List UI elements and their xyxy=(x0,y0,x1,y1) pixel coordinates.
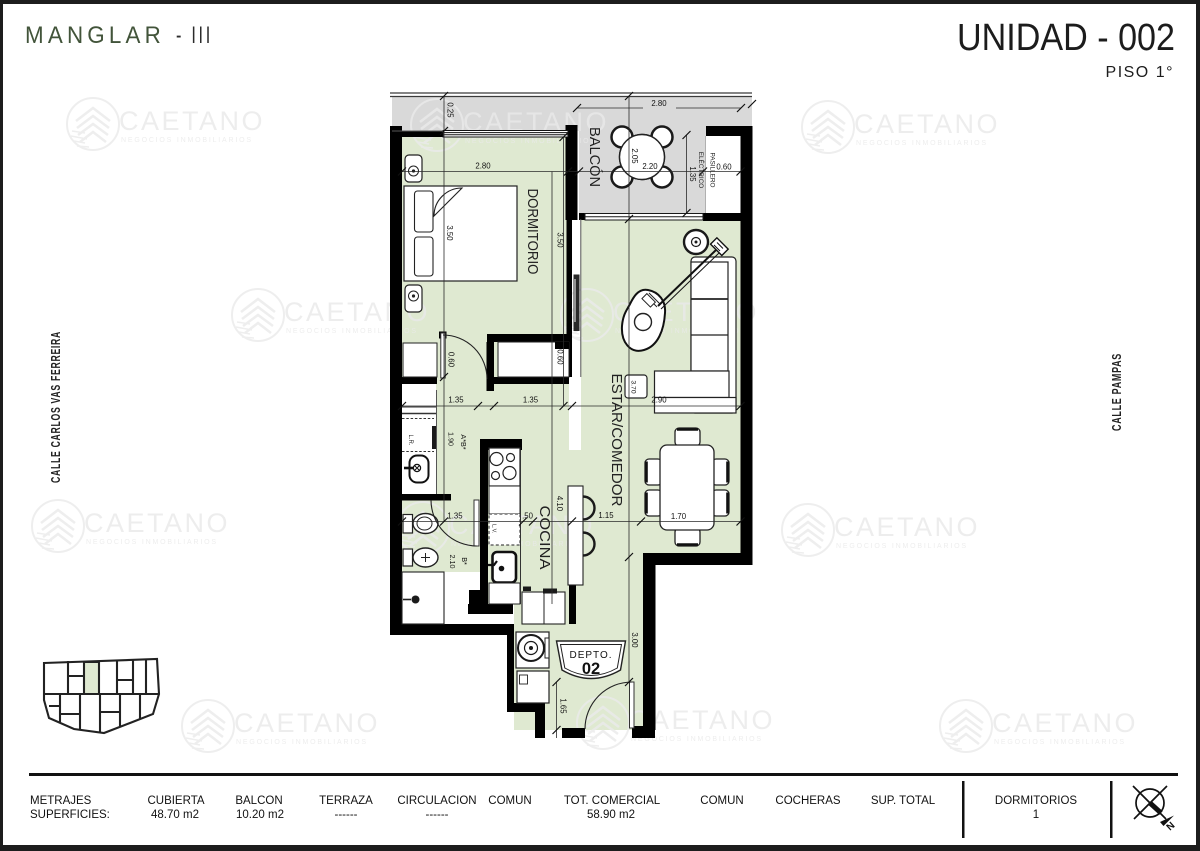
svg-text:10.20 m2: 10.20 m2 xyxy=(236,809,284,821)
svg-text:1.15: 1.15 xyxy=(598,511,614,520)
svg-text:58.90 m2: 58.90 m2 xyxy=(587,809,635,821)
svg-text:CIRCULACION: CIRCULACION xyxy=(397,795,476,807)
svg-text:BALCÓN: BALCÓN xyxy=(586,127,603,187)
svg-text:0.60: 0.60 xyxy=(556,349,565,365)
svg-text:ESTAR/COMEDOR: ESTAR/COMEDOR xyxy=(608,374,624,507)
svg-text:3.00: 3.00 xyxy=(630,632,639,648)
svg-text:1.90: 1.90 xyxy=(447,432,456,446)
svg-text:1.35: 1.35 xyxy=(523,396,539,405)
svg-text:2.05: 2.05 xyxy=(630,148,639,164)
svg-text:B*: B* xyxy=(460,557,469,565)
svg-text:2.20: 2.20 xyxy=(642,162,658,171)
svg-text:SUP. TOTAL: SUP. TOTAL xyxy=(871,795,936,807)
svg-text:METRAJES: METRAJES xyxy=(30,795,92,807)
svg-text:CALLE CARLOS VAS FERREIRA: CALLE CARLOS VAS FERREIRA xyxy=(49,331,63,483)
svg-text:L.V.: L.V. xyxy=(491,524,497,534)
svg-text:UNIDAD - 002: UNIDAD - 002 xyxy=(957,17,1175,59)
svg-text:------: ------ xyxy=(426,809,449,821)
svg-text:48.70 m2: 48.70 m2 xyxy=(151,809,199,821)
svg-text:1.65: 1.65 xyxy=(559,698,568,714)
svg-text:3.50: 3.50 xyxy=(445,225,454,241)
svg-text:PASILLERO: PASILLERO xyxy=(709,152,716,187)
svg-text:DORMITORIOS: DORMITORIOS xyxy=(995,795,1078,807)
svg-text:3.50: 3.50 xyxy=(556,232,565,248)
svg-text:1.35: 1.35 xyxy=(448,396,464,405)
svg-text:2.90: 2.90 xyxy=(651,396,667,405)
svg-text:.50: .50 xyxy=(522,512,534,521)
svg-text:A*B*: A*B* xyxy=(459,434,468,449)
svg-text:COCINA: COCINA xyxy=(536,506,552,570)
svg-text:1.35: 1.35 xyxy=(447,512,463,521)
svg-text:1.35: 1.35 xyxy=(688,166,697,182)
svg-text:MANGLAR: MANGLAR xyxy=(25,22,165,49)
svg-text:BALCON: BALCON xyxy=(235,795,282,807)
svg-text:COMUN: COMUN xyxy=(488,795,531,807)
svg-text:ELÉCTRICO: ELÉCTRICO xyxy=(697,152,706,189)
svg-text:COCHERAS: COCHERAS xyxy=(775,795,841,807)
svg-text:2.10: 2.10 xyxy=(448,555,457,569)
svg-text:CUBIERTA: CUBIERTA xyxy=(147,795,204,807)
svg-text:3.70: 3.70 xyxy=(630,380,637,393)
svg-text:02: 02 xyxy=(582,660,600,678)
svg-text:DORMITORIO: DORMITORIO xyxy=(524,189,540,275)
svg-text:------: ------ xyxy=(335,809,358,821)
svg-text:SUPERFICIES:: SUPERFICIES: xyxy=(30,809,110,821)
svg-text:TOT. COMERCIAL: TOT. COMERCIAL xyxy=(564,795,661,807)
svg-text:4.10: 4.10 xyxy=(555,496,564,512)
svg-text:1.70: 1.70 xyxy=(671,512,687,521)
svg-text:2.80: 2.80 xyxy=(651,99,667,108)
svg-text:0.60: 0.60 xyxy=(447,352,456,368)
svg-text:PISO 1°: PISO 1° xyxy=(1106,64,1174,81)
svg-text:1: 1 xyxy=(1033,809,1039,821)
svg-text:0.60: 0.60 xyxy=(716,163,732,172)
svg-text:L.R.: L.R. xyxy=(407,434,413,445)
svg-text:TERRAZA: TERRAZA xyxy=(319,795,373,807)
svg-text:0.25: 0.25 xyxy=(446,102,455,118)
svg-text:2.80: 2.80 xyxy=(475,162,491,171)
svg-text:COMUN: COMUN xyxy=(700,795,743,807)
svg-text:CALLE PAMPAS: CALLE PAMPAS xyxy=(1110,353,1124,431)
svg-text:- III: - III xyxy=(176,22,213,49)
